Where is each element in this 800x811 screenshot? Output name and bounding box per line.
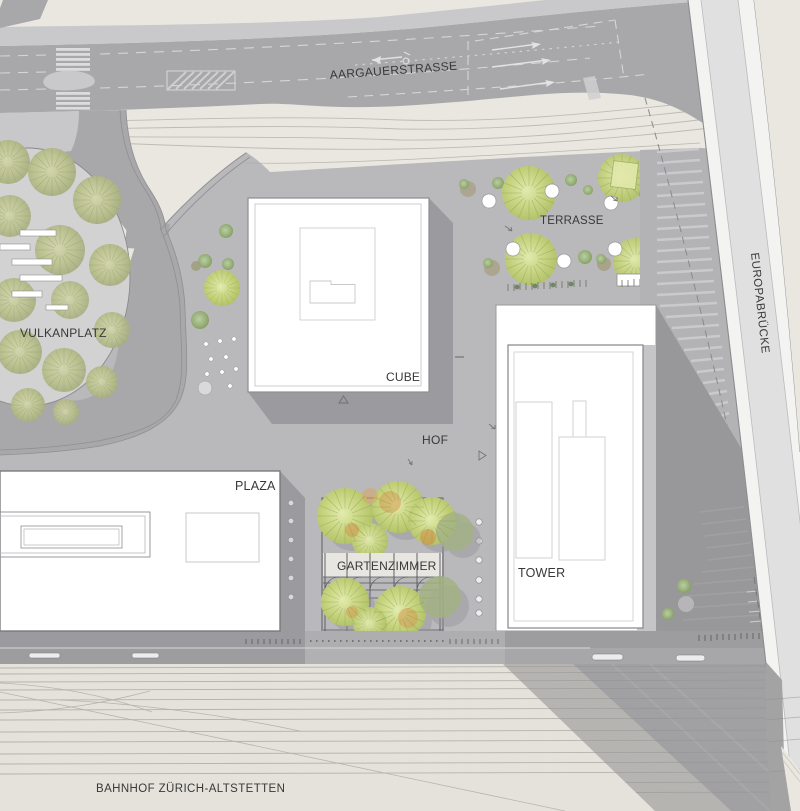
svg-text:TERRASSE: TERRASSE <box>540 215 604 227</box>
svg-text:CUBE: CUBE <box>386 370 420 384</box>
svg-text:VULKANPLATZ: VULKANPLATZ <box>20 326 107 340</box>
svg-text:HOF: HOF <box>422 433 448 447</box>
svg-text:TOWER: TOWER <box>518 566 565 580</box>
svg-text:GARTENZIMMER: GARTENZIMMER <box>337 559 437 573</box>
svg-text:BAHNHOF ZÜRICH-ALTSTETTEN: BAHNHOF ZÜRICH-ALTSTETTEN <box>96 783 285 795</box>
svg-text:PLAZA: PLAZA <box>235 479 276 493</box>
